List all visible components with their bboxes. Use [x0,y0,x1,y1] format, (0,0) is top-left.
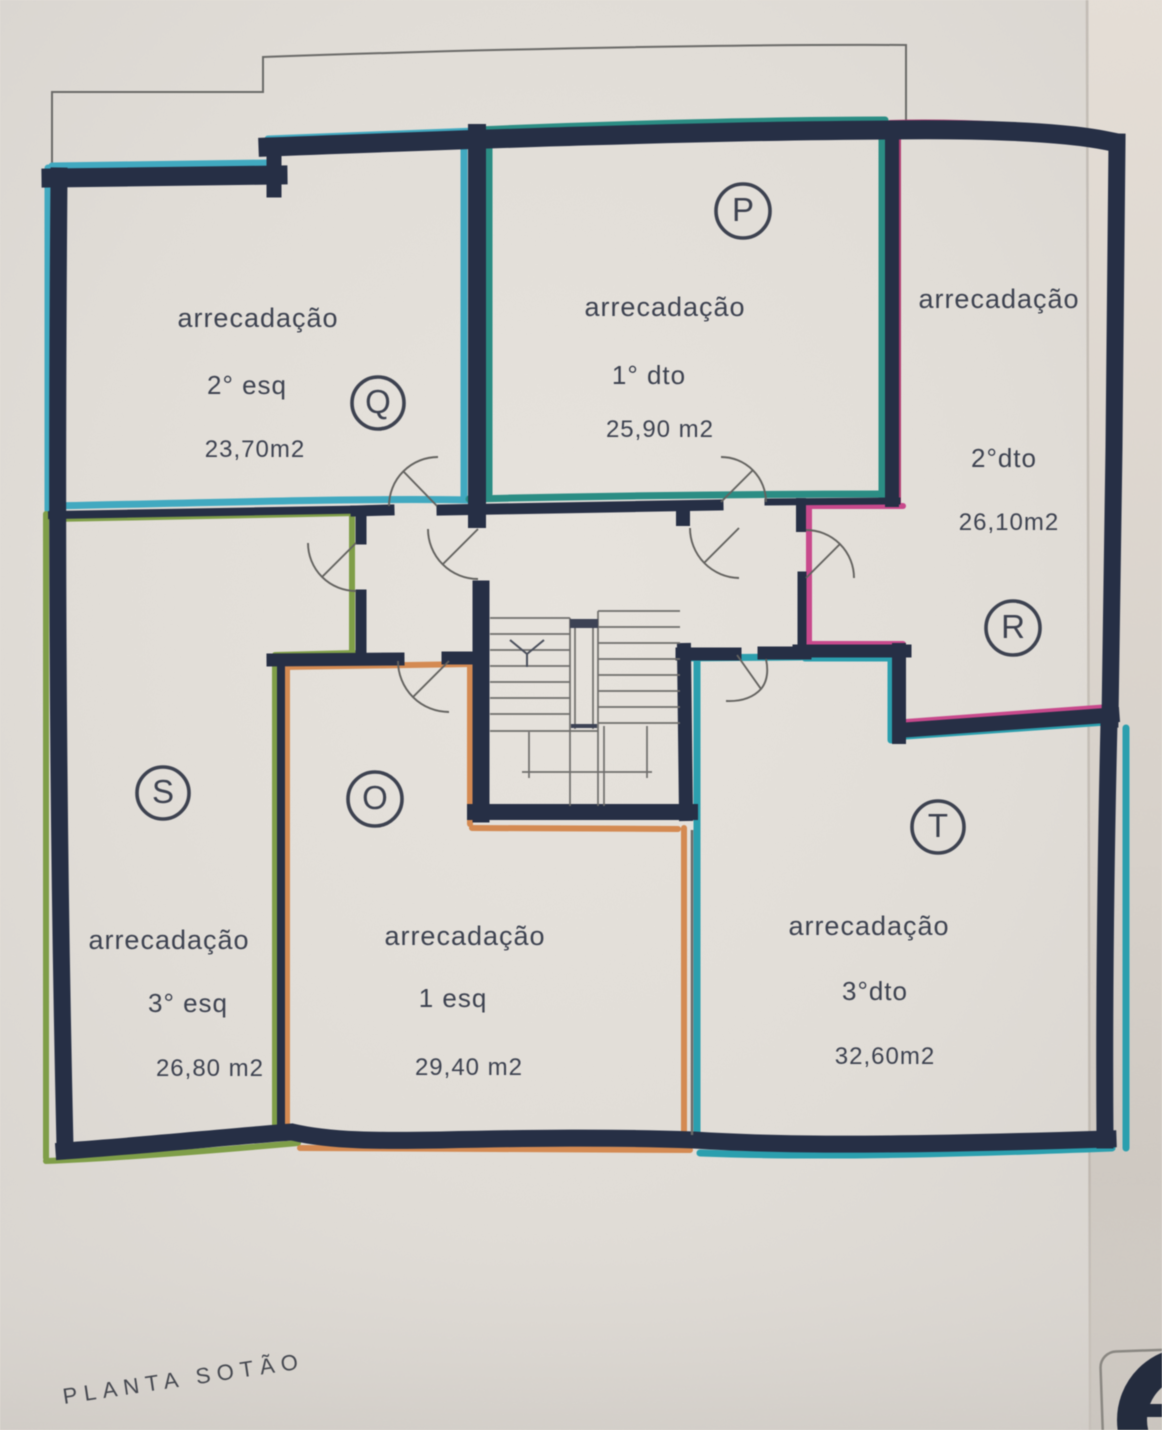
svg-text:29,40 m2: 29,40 m2 [415,1054,523,1081]
svg-text:Q: Q [365,383,391,420]
svg-text:23,70m2: 23,70m2 [205,436,305,463]
svg-text:O: O [362,779,388,816]
svg-text:S: S [152,773,174,810]
svg-text:R: R [1001,608,1025,645]
svg-text:arrecadação: arrecadação [384,921,545,951]
svg-text:arrecadação: arrecadação [177,303,338,333]
svg-text:3°dto: 3°dto [842,976,908,1006]
svg-text:26,80 m2: 26,80 m2 [156,1055,264,1082]
svg-text:P: P [732,191,754,228]
svg-text:26,10m2: 26,10m2 [959,509,1059,536]
svg-text:T: T [928,807,948,844]
svg-text:1° dto: 1° dto [612,360,686,390]
svg-text:2°dto: 2°dto [971,443,1037,473]
svg-text:arrecadação: arrecadação [584,292,745,322]
svg-text:1 esq: 1 esq [419,983,488,1013]
svg-text:arrecadação: arrecadação [918,284,1079,314]
svg-text:25,90 m2: 25,90 m2 [606,416,714,443]
svg-text:2° esq: 2° esq [207,370,287,400]
svg-text:32,60m2: 32,60m2 [835,1043,935,1070]
svg-text:arrecadação: arrecadação [88,925,249,955]
svg-text:3° esq: 3° esq [148,988,228,1018]
svg-text:arrecadação: arrecadação [788,911,949,941]
